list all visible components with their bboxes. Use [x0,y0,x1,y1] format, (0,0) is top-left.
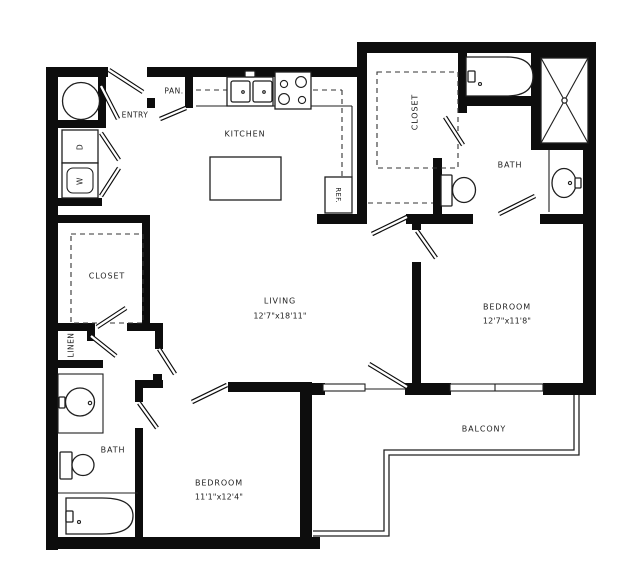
pantry-label: PAN. [164,87,183,96]
dryer: D [62,130,98,163]
living-label: LIVING [264,297,296,306]
bathtub-master [466,57,533,96]
master-bath-label: BATH [498,161,523,170]
kitchen-label: KITCHEN [225,130,266,139]
living-dimensions: 12'7"x18'11" [253,312,306,321]
dryer-label: D [76,144,85,150]
living-window [323,384,365,391]
stove [275,72,311,109]
master-bedroom-label: BEDROOM [483,303,531,312]
bathtub-second [58,493,138,534]
washer: W [62,163,98,198]
floorplan-svg: REF. D W [0,0,639,571]
kitchen-island [210,157,281,200]
refrigerator-label: REF. [334,187,342,203]
floorplan-image: REF. D W [0,0,639,571]
toilet-second [60,452,94,479]
second-bedroom-label: BEDROOM [195,479,243,488]
master-closet-label: CLOSET [411,94,420,130]
linen-label: LINEN [67,333,76,358]
vanity-sink-master [549,150,581,212]
second-bedroom-dimensions: 11'1"x12'4" [195,493,243,502]
water-heater [63,83,100,120]
second-closet-label: CLOSET [89,272,125,281]
refrigerator: REF. [325,177,352,213]
vanity-sink-second [58,374,103,433]
toilet-master [441,175,476,206]
second-bath-label: BATH [101,446,126,455]
washer-label: W [76,177,85,185]
entry-label: ENTRY [122,111,149,120]
master-bedroom-dimensions: 12'7"x11'8" [483,317,531,326]
bedroom1-window [450,384,543,391]
balcony-railing [313,395,579,536]
shower [541,58,588,143]
balcony-label: BALCONY [462,425,506,434]
